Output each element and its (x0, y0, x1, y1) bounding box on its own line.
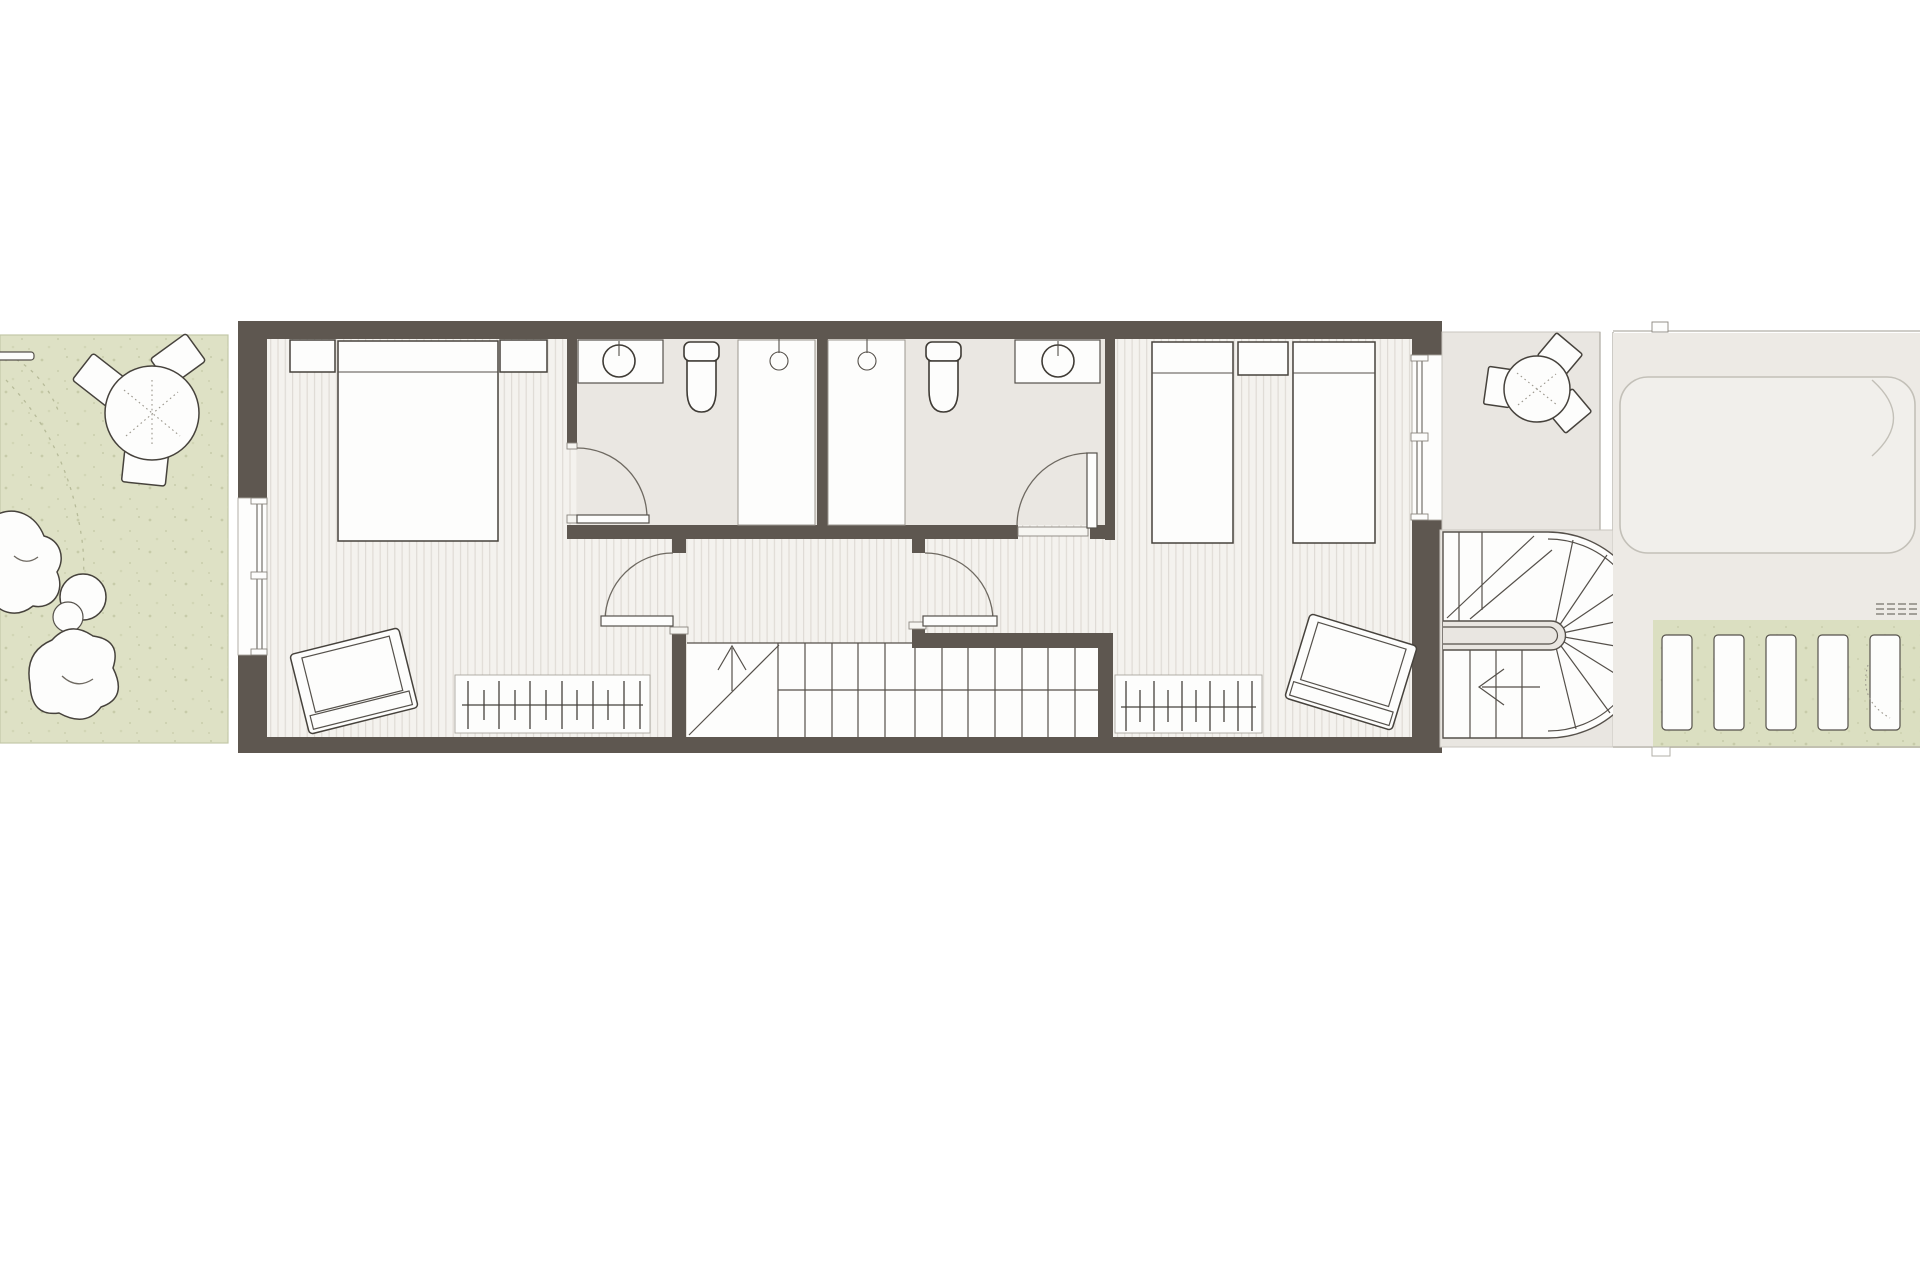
wall-hall-stub-west (672, 539, 686, 553)
door-c-hinge-cap (670, 627, 688, 634)
plank-paver (1818, 635, 1848, 730)
wall-right-lower (1412, 520, 1442, 737)
nightstand (1238, 342, 1288, 375)
wall-left-lower (238, 655, 267, 737)
garden-bench (0, 352, 34, 360)
terrace (1442, 332, 1613, 530)
window-master-bedroom (238, 498, 267, 655)
floor-plan-canvas (0, 0, 1920, 1280)
door-a-hinge-cap (567, 515, 578, 523)
wall-top (238, 321, 1442, 339)
wall-left-upper (238, 339, 267, 498)
radiator-bedroom-2 (1115, 675, 1262, 733)
wall-bottom (238, 737, 1442, 753)
shower-tray (738, 340, 815, 525)
door-b-threshold (1018, 527, 1088, 536)
door-bathroom-leaf (1087, 453, 1097, 528)
garden-path (1613, 604, 1920, 756)
nightstand (500, 340, 547, 372)
external-stair-newel (1443, 621, 1566, 650)
wall-hall-west-lower (672, 633, 686, 737)
wall-bathrooms-south-west (567, 525, 1018, 539)
wall-between-bathrooms (817, 339, 828, 539)
toilet (926, 342, 961, 412)
path-edge-notch (1652, 747, 1670, 756)
driveway-slab-lower (1613, 620, 1653, 748)
window-bedroom-2 (1411, 355, 1442, 520)
wall-stair-north (923, 633, 1113, 648)
wall-ensuite-left (567, 339, 577, 443)
pebble-pouf-small (53, 602, 83, 632)
door-ensuite-leaf (577, 515, 649, 523)
plank-paver (1766, 635, 1796, 730)
single-bed (1293, 342, 1375, 543)
single-bed (1152, 342, 1233, 543)
toilet (684, 342, 719, 412)
floor-plan-page (0, 0, 1920, 1280)
plank-paver (1714, 635, 1744, 730)
door-a-jamb-cap (567, 443, 577, 449)
door-master-bedroom-leaf (601, 616, 673, 626)
door-bedroom-2-leaf (923, 616, 997, 626)
wall-stair-east (1098, 648, 1113, 737)
wall-bathroom-right (1105, 339, 1115, 540)
radiator-master (455, 675, 650, 733)
nightstand (290, 340, 335, 372)
car (1620, 377, 1915, 553)
double-bed (338, 341, 498, 541)
car-body (1620, 377, 1915, 553)
wall-hall-stub-east (912, 539, 925, 553)
shower-tray (828, 340, 905, 525)
wall-right-upper (1412, 339, 1442, 355)
plank-paver (1662, 635, 1692, 730)
terrace-edge-lines (1600, 332, 1613, 530)
gate-post-notch (1652, 322, 1668, 332)
garden (0, 333, 228, 743)
plank-paver (1870, 635, 1900, 730)
